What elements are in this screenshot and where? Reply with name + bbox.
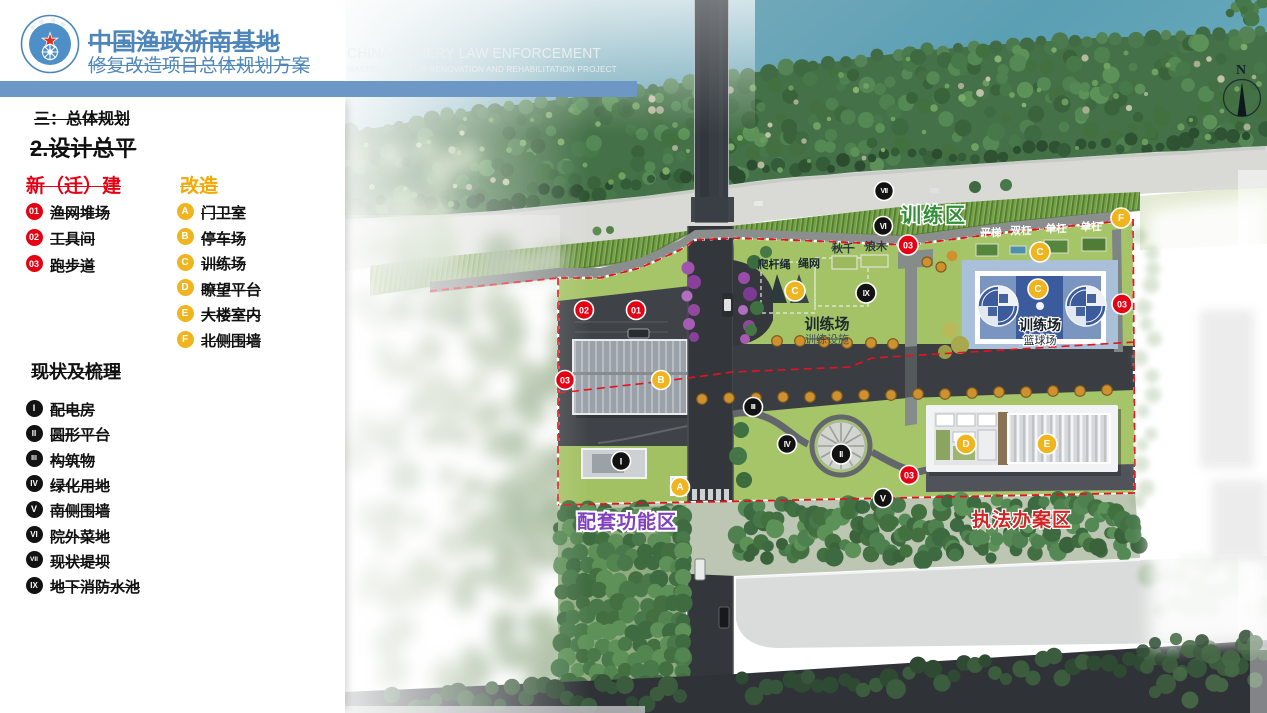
svg-text:绳网: 绳网 <box>798 256 820 270</box>
svg-text:II: II <box>839 450 843 459</box>
svg-text:D: D <box>962 439 969 450</box>
svg-text:训练场: 训练场 <box>804 315 849 333</box>
svg-text:配套功能区: 配套功能区 <box>577 510 677 533</box>
svg-text:III: III <box>751 404 756 411</box>
svg-text:A: A <box>676 482 683 493</box>
svg-text:03: 03 <box>1117 300 1127 310</box>
svg-text:篮球场: 篮球场 <box>1024 333 1057 347</box>
svg-text:E: E <box>1044 439 1051 450</box>
svg-text:VI: VI <box>880 222 887 231</box>
svg-text:B: B <box>657 375 664 386</box>
svg-text:03: 03 <box>903 241 913 251</box>
svg-text:训练场: 训练场 <box>1019 317 1061 333</box>
svg-text:C: C <box>1036 247 1043 258</box>
svg-text:训练区: 训练区 <box>901 203 967 227</box>
svg-text:C: C <box>791 286 798 297</box>
svg-text:01: 01 <box>631 306 641 316</box>
svg-text:03: 03 <box>904 471 914 481</box>
svg-text:02: 02 <box>579 306 589 316</box>
svg-text:I: I <box>620 457 623 467</box>
svg-text:N: N <box>1236 63 1246 78</box>
svg-text:03: 03 <box>560 376 570 386</box>
svg-text:V: V <box>880 494 886 504</box>
svg-text:F: F <box>1118 213 1124 224</box>
svg-text:VII: VII <box>880 188 888 195</box>
svg-text:执法办案区: 执法办案区 <box>972 508 1072 531</box>
svg-text:爬杆绳: 爬杆绳 <box>758 257 791 271</box>
svg-text:C: C <box>1034 284 1041 295</box>
